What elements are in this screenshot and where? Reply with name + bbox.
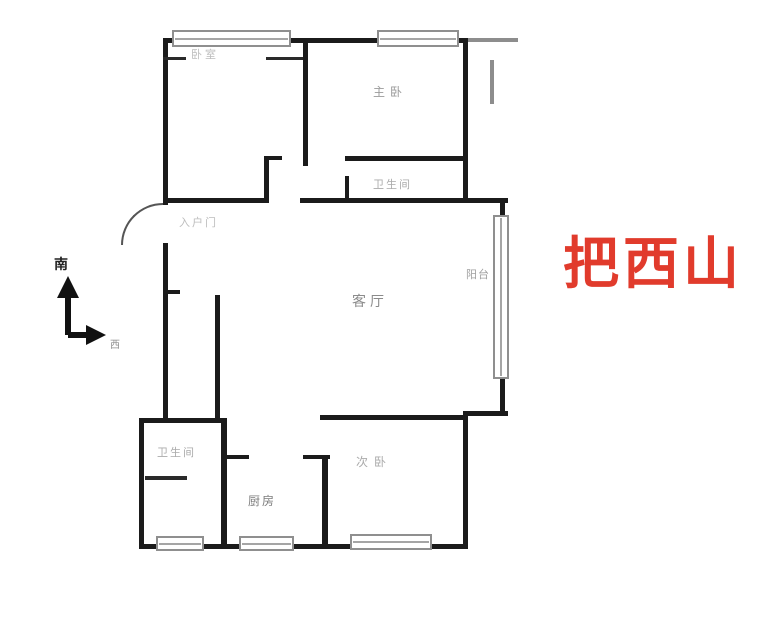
room-label-entry-door: 入户门 [179, 217, 218, 228]
window-bedroom1 [172, 30, 291, 47]
wall-bedroom2-top [320, 415, 467, 420]
wall-left-upper [163, 38, 168, 205]
wall-hall-tick [163, 290, 180, 294]
wall-step-horizontal [264, 156, 282, 160]
wall-balcony-right-lower [500, 373, 505, 416]
closet-line-left [163, 57, 186, 60]
wall-bathroom-bottom [300, 198, 467, 203]
room-label-kitchen: 厨房 [248, 495, 276, 507]
wall-right-lower [463, 411, 468, 549]
wall-kitchen-right [322, 455, 328, 549]
compass: 南 西 [50, 252, 140, 352]
wall-stub-right [490, 60, 494, 104]
room-label-living-room: 客厅 [352, 295, 388, 309]
wall-bedroom-divider [303, 38, 308, 166]
wall-left-mid [163, 243, 168, 423]
wall-balcony-bottom [463, 411, 508, 416]
window-bedroom2 [350, 534, 432, 550]
wall-bedroom1-bottom [163, 198, 268, 203]
wall-bathroom2-right [221, 418, 227, 545]
window-bathroom2 [156, 536, 204, 551]
wall-bathroom2-divider [145, 476, 187, 480]
window-balcony [493, 215, 509, 379]
floor-plan-canvas: 卧室 主卧 卫生间 阳台 客厅 入户门 卫生间 厨房 次卧 南 西 把西山 [0, 0, 776, 619]
room-label-master-bedroom: 主卧 [373, 86, 407, 98]
room-label-balcony: 阳台 [466, 269, 490, 280]
wall-left-lower [139, 418, 144, 549]
wall-step-vertical [264, 156, 269, 203]
room-label-bathroom-top: 卫生间 [373, 179, 412, 190]
wall-hallway [215, 295, 220, 420]
wall-jog-bottom-left [139, 418, 227, 423]
wall-stub-top-right [467, 38, 518, 42]
window-kitchen [239, 536, 294, 551]
wall-kitchen-top-left [225, 455, 249, 459]
room-label-bathroom-bottom: 卫生间 [157, 447, 196, 458]
wall-right-upper [463, 38, 468, 203]
entry-door-arc [121, 203, 163, 245]
watermark-text: 把西山 [563, 237, 773, 293]
window-master-bedroom [377, 30, 459, 47]
room-label-second-bedroom: 次卧 [356, 456, 392, 468]
room-label-bedroom-top-left: 卧室 [191, 49, 219, 60]
compass-arrows-icon [50, 270, 118, 348]
closet-line-right [266, 57, 303, 60]
wall-master-bottom [345, 156, 467, 161]
